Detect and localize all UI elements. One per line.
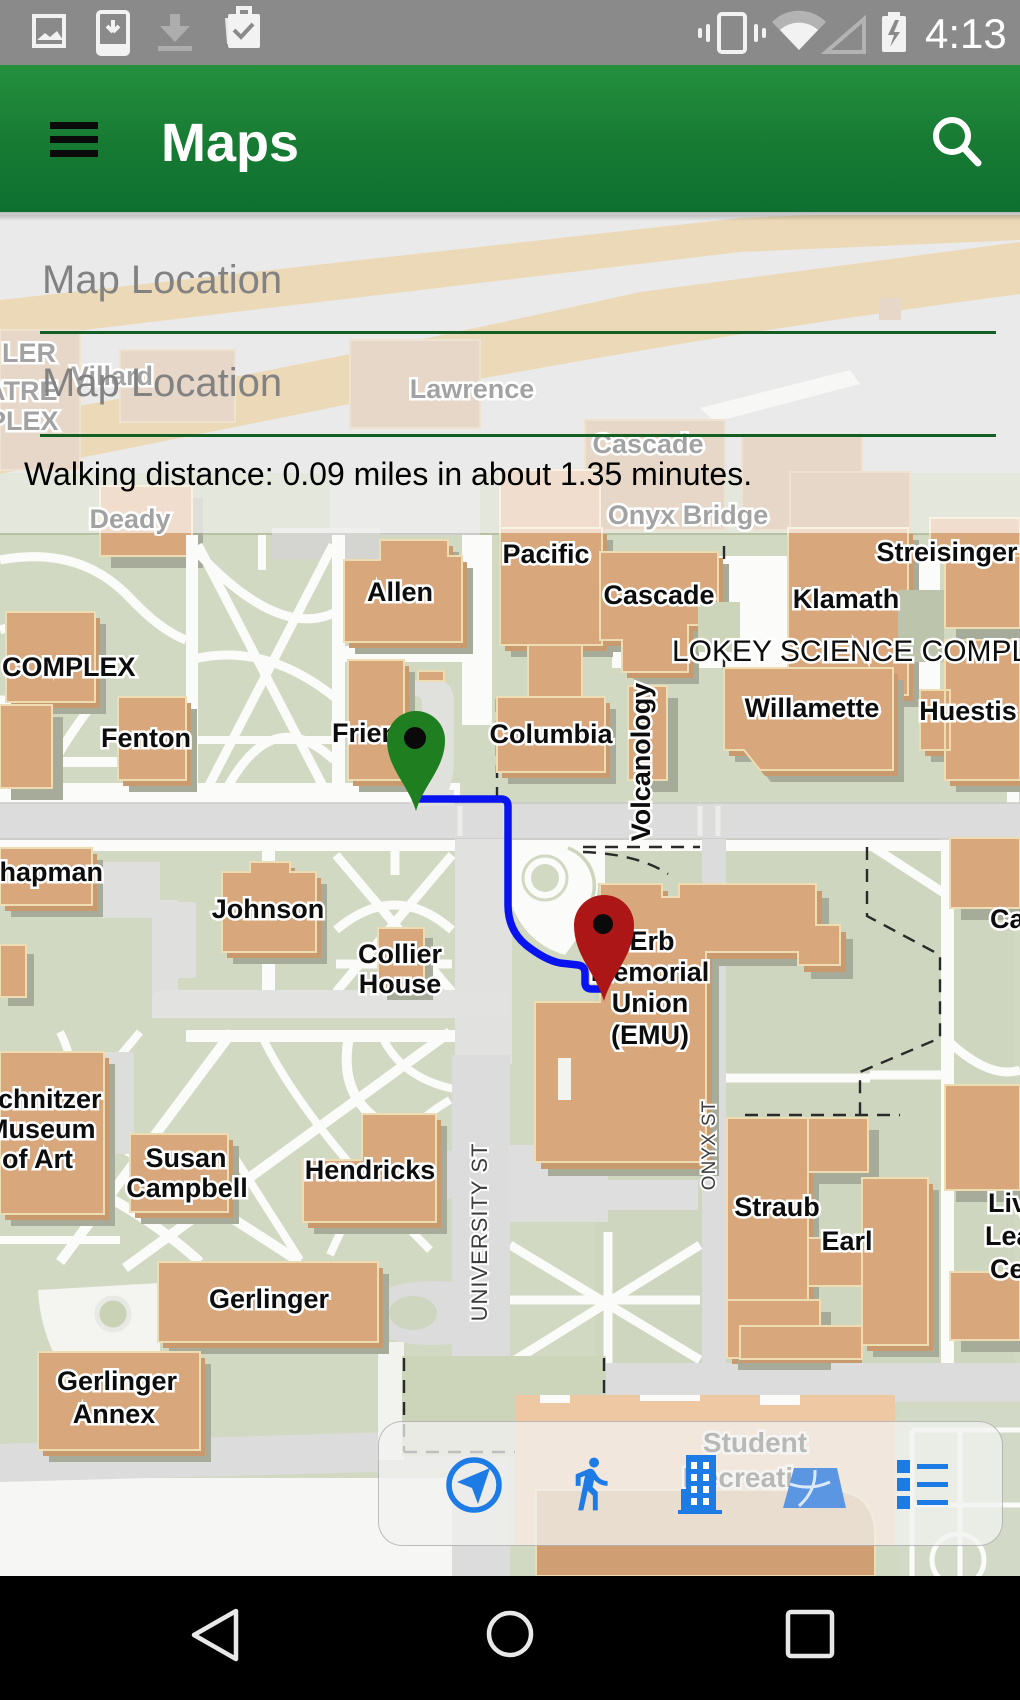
svg-text:Center: Center bbox=[990, 1254, 1020, 1284]
svg-text:UNIVERSITY ST: UNIVERSITY ST bbox=[467, 1143, 492, 1322]
svg-text:Carson: Carson bbox=[990, 904, 1020, 934]
svg-text:Streisinger: Streisinger bbox=[876, 537, 1018, 567]
svg-text:of Art: of Art bbox=[2, 1144, 73, 1174]
svg-text:Annex: Annex bbox=[73, 1399, 156, 1429]
svg-text:Museum: Museum bbox=[0, 1114, 96, 1144]
svg-text:ONYX ST: ONYX ST bbox=[699, 1100, 720, 1190]
svg-text:Collier: Collier bbox=[358, 939, 443, 969]
svg-text:Columbia: Columbia bbox=[489, 719, 613, 749]
svg-text:Pacific: Pacific bbox=[502, 539, 589, 569]
svg-text:Living: Living bbox=[988, 1188, 1020, 1218]
svg-text:Hendricks: Hendricks bbox=[305, 1155, 436, 1185]
svg-text:Klamath: Klamath bbox=[793, 584, 900, 614]
svg-text:Fenton: Fenton bbox=[101, 723, 191, 753]
svg-text:Union: Union bbox=[612, 988, 688, 1018]
svg-text:Gerlinger: Gerlinger bbox=[57, 1366, 178, 1396]
svg-text:Volcanology: Volcanology bbox=[626, 683, 656, 842]
svg-text:COMPLEX: COMPLEX bbox=[2, 652, 136, 682]
svg-text:4:13: 4:13 bbox=[925, 10, 1007, 57]
svg-text:Susan: Susan bbox=[145, 1143, 226, 1173]
svg-text:Huestis: Huestis bbox=[919, 696, 1017, 726]
svg-text:Campbell: Campbell bbox=[126, 1173, 248, 1203]
svg-text:Earl: Earl bbox=[821, 1226, 872, 1256]
svg-text:Straub: Straub bbox=[734, 1192, 820, 1222]
svg-text:Chapman: Chapman bbox=[0, 857, 103, 887]
svg-text:Schnitzer: Schnitzer bbox=[0, 1084, 102, 1114]
svg-text:(EMU): (EMU) bbox=[611, 1020, 689, 1050]
svg-text:Allen: Allen bbox=[367, 577, 433, 607]
svg-text:Johnson: Johnson bbox=[212, 894, 325, 924]
svg-text:Erb: Erb bbox=[629, 926, 674, 956]
svg-text:Learning: Learning bbox=[985, 1221, 1020, 1251]
svg-text:LOKEY SCIENCE COMPLEX: LOKEY SCIENCE COMPLEX bbox=[672, 635, 1020, 668]
svg-text:House: House bbox=[359, 969, 442, 999]
svg-text:Willamette: Willamette bbox=[745, 693, 880, 723]
svg-text:Cascade: Cascade bbox=[603, 580, 714, 610]
svg-text:Gerlinger: Gerlinger bbox=[209, 1284, 330, 1314]
